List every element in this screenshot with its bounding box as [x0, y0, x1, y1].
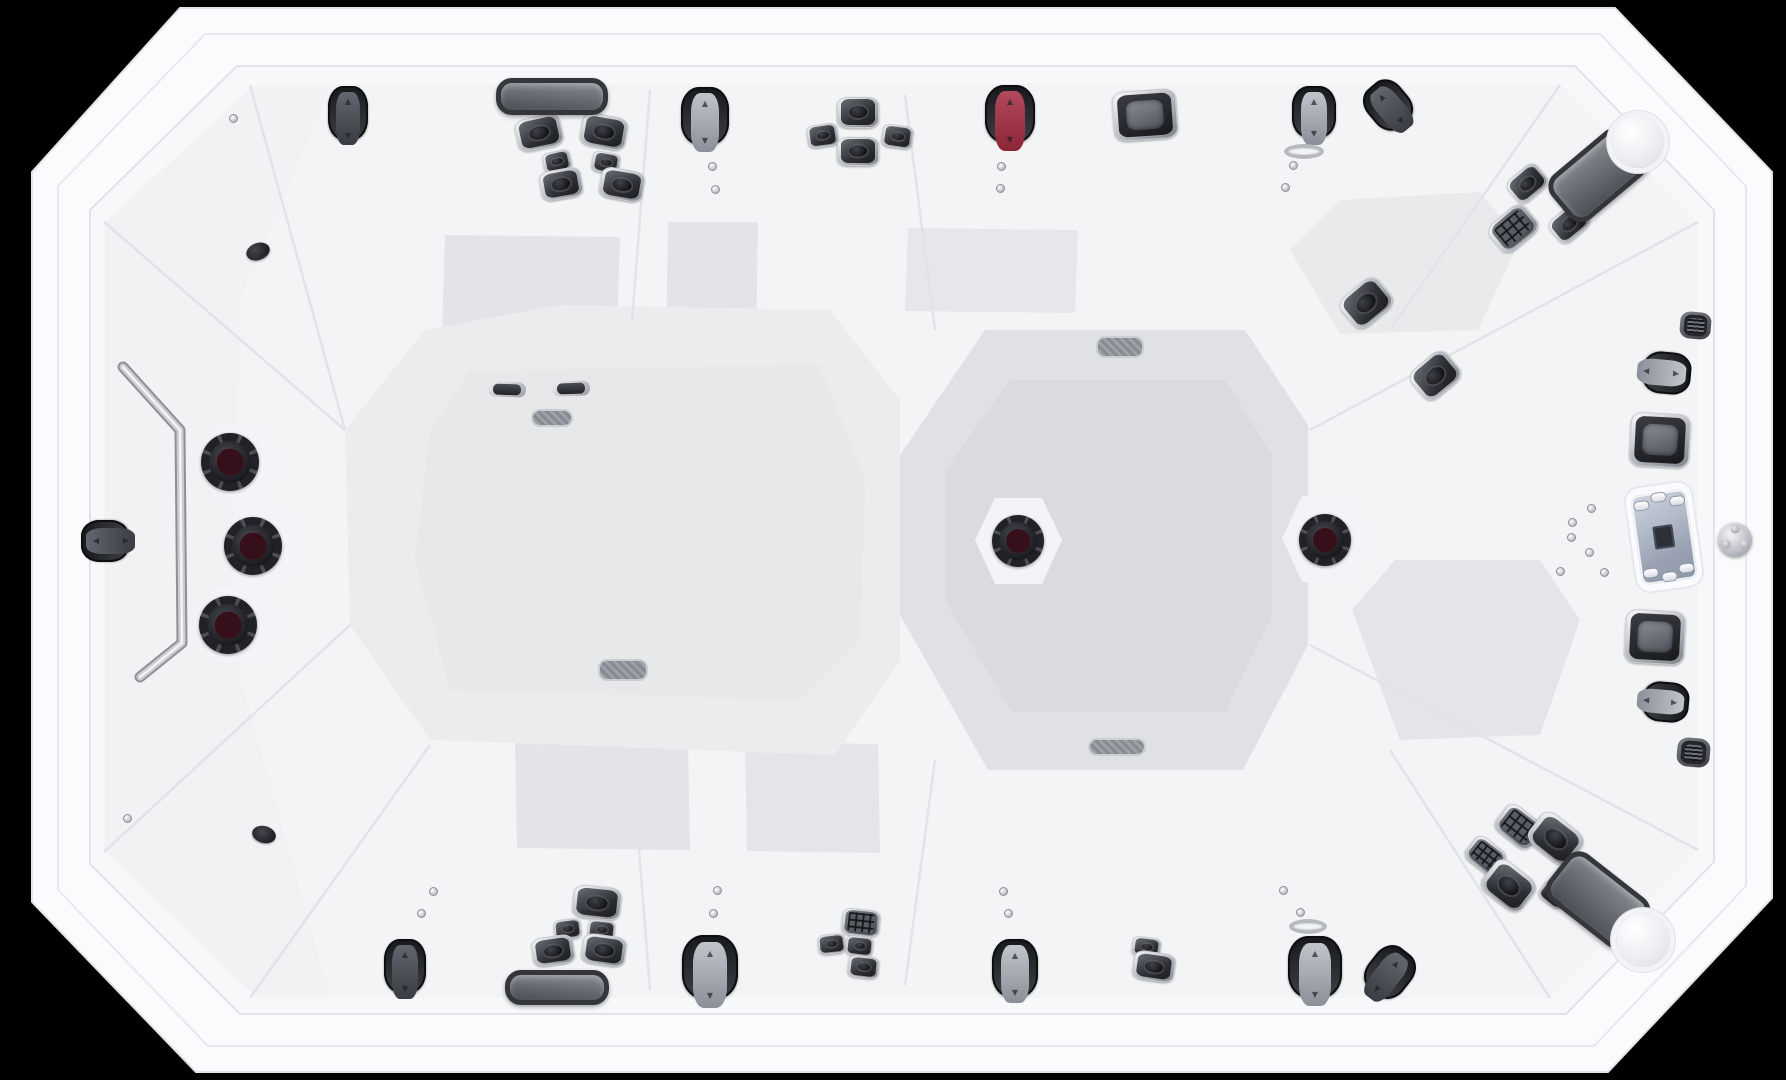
- rotary-nozzle: [217, 449, 243, 475]
- rotary-massage-jet: [1299, 514, 1351, 566]
- screw-fitting: [1281, 183, 1290, 192]
- jet-plug: [1125, 99, 1164, 131]
- air-toggle: ▲▼: [384, 939, 426, 993]
- chrome-trim-ring: [1289, 919, 1327, 934]
- air-toggle: ▲▼: [81, 520, 129, 562]
- control-panel-display: [1652, 524, 1675, 550]
- screw-fitting: [996, 184, 1005, 193]
- screw-fitting: [1279, 886, 1288, 895]
- screw-fitting: [417, 909, 426, 918]
- seat-well: [515, 742, 690, 850]
- mesh-jet: [1678, 310, 1711, 340]
- toggle-arrow-icon: ▼: [707, 992, 713, 1000]
- screw-fitting: [1587, 504, 1596, 513]
- screw-fitting: [713, 886, 722, 895]
- jet-plug: [1637, 620, 1673, 653]
- air-toggle: ▲▼: [682, 935, 738, 999]
- diverter-valve: [1718, 523, 1752, 557]
- hydro-jet: [580, 932, 628, 968]
- toggle-arrow-icon: ▼: [1311, 130, 1317, 138]
- screw-fitting: [429, 887, 438, 896]
- screw-fitting: [709, 909, 718, 918]
- toggle-arrow-icon: ▼: [1642, 697, 1651, 704]
- control-panel: [1624, 481, 1704, 593]
- rotary-nozzle: [240, 533, 266, 559]
- rotary-massage-jet: [992, 515, 1044, 567]
- hydro-jet: [805, 121, 839, 148]
- control-panel-button: [1679, 563, 1694, 573]
- toggle-arrow-icon: ▲: [707, 950, 713, 958]
- air-toggle: ▲▼: [1288, 936, 1342, 998]
- toggle-lever: ▲▼: [693, 942, 727, 1008]
- toggle-arrow-icon: ▼: [702, 137, 708, 145]
- hydro-jet: [837, 97, 879, 128]
- toggle-arrow-icon: ▲: [345, 98, 351, 106]
- control-panel-face: [1630, 489, 1699, 586]
- toggle-arrow-icon: ▲: [702, 100, 708, 108]
- screw-fitting: [708, 162, 717, 171]
- air-toggle: ▲▼: [1292, 86, 1336, 138]
- toggle-arrow-icon: ▼: [122, 538, 130, 544]
- toggle-lever: ▲▼: [1636, 688, 1685, 716]
- square-jet: [1111, 88, 1178, 142]
- air-toggle: ▲▼: [992, 939, 1038, 997]
- toggle-arrow-icon: ▲: [1391, 959, 1401, 969]
- toggle-arrow-icon: ▼: [345, 132, 351, 140]
- toggle-lever: ▲▼: [336, 92, 360, 145]
- screw-fitting: [123, 814, 132, 823]
- toggle-arrow-icon: ▲: [1670, 699, 1679, 706]
- toggle-arrow-icon: ▲: [1312, 950, 1318, 958]
- toggle-arrow-icon: ▼: [1012, 989, 1018, 997]
- slot-jet: [488, 381, 527, 397]
- slot-jet: [552, 380, 591, 396]
- air-toggle: ▲▼: [681, 87, 729, 145]
- screw-fitting: [1296, 908, 1305, 917]
- screw-fitting: [1004, 909, 1013, 918]
- drain-cover: [531, 409, 573, 427]
- control-panel-button: [1651, 492, 1666, 502]
- hydro-jet: [837, 137, 879, 166]
- jet-plug: [1642, 423, 1678, 456]
- rotary-massage-jet: [201, 433, 259, 491]
- toggle-lever: ▲▼: [1299, 943, 1331, 1006]
- hydro-jet: [817, 933, 846, 956]
- control-panel-button: [1662, 572, 1677, 582]
- toggle-arrow-icon: ▼: [1007, 136, 1013, 144]
- control-panel-button: [1643, 568, 1658, 578]
- rotary-nozzle: [1007, 530, 1030, 553]
- chrome-trim-ring: [1284, 144, 1324, 159]
- jet-nozzle: [847, 143, 869, 158]
- toggle-arrow-icon: ▲: [92, 538, 100, 544]
- toggle-arrow-icon: ▲: [1311, 98, 1317, 106]
- toggle-lever: ▲▼: [1301, 92, 1327, 145]
- air-toggle: ▲▼: [1641, 350, 1692, 396]
- waffle-grid: [847, 912, 875, 933]
- control-panel-button: [1634, 501, 1649, 511]
- screw-fitting: [711, 185, 720, 194]
- air-toggle: ▲▼: [985, 85, 1035, 143]
- toggle-arrow-icon: ▼: [1312, 991, 1318, 999]
- screw-fitting: [1556, 567, 1565, 576]
- toggle-lever: ▲▼: [1636, 358, 1687, 387]
- toggle-arrow-icon: ▲: [1012, 952, 1018, 960]
- toggle-lever: ▲▼: [691, 93, 720, 152]
- valve-lobe: [1731, 525, 1740, 534]
- swim-floor-inner: [415, 365, 865, 700]
- toggle-arrow-icon: ▲: [1377, 93, 1387, 103]
- filter-lid-knob: [1616, 913, 1670, 967]
- valve-lobe: [1722, 540, 1731, 549]
- seat-well: [745, 742, 880, 853]
- rotary-nozzle: [215, 612, 241, 638]
- screw-fitting: [1585, 548, 1594, 557]
- hydro-jet: [571, 883, 622, 921]
- toggle-lever: ▲▼: [392, 945, 417, 999]
- toggle-arrow-icon: ▼: [402, 985, 408, 993]
- air-toggle: ▲▼: [328, 86, 368, 140]
- toggle-arrow-icon: ▲: [1007, 98, 1013, 106]
- hydro-jet: [846, 954, 879, 979]
- toggle-arrow-icon: ▼: [1642, 368, 1651, 375]
- toggle-arrow-icon: ▲: [1672, 370, 1681, 377]
- filter-lid-knob: [1612, 116, 1664, 168]
- square-jet: [1629, 411, 1692, 468]
- rotary-massage-jet: [199, 596, 257, 654]
- toggle-lever: ▲▼: [1001, 945, 1029, 1003]
- headrest-pillow: [505, 970, 609, 1005]
- spa-photo-stage: ▲▼▲▼▲▼▲▼▲▼▲▼▲▼▲▼▲▼▲▼▲▼▲▼▲▼: [0, 0, 1786, 1080]
- screw-fitting: [997, 162, 1006, 171]
- jet-nozzle: [847, 104, 869, 120]
- drain-cover: [1088, 738, 1146, 756]
- drain-cover: [1096, 336, 1144, 358]
- mesh-screen: [1683, 743, 1703, 761]
- jet-face: [493, 383, 521, 395]
- air-toggle: ▲▼: [1641, 680, 1690, 724]
- toggle-arrow-icon: ▲: [402, 951, 408, 959]
- screw-fitting: [229, 114, 238, 123]
- hydro-jet: [1131, 949, 1177, 984]
- mesh-screen: [1686, 317, 1705, 334]
- toggle-lever: ▲▼: [995, 91, 1025, 150]
- square-jet: [1624, 608, 1687, 665]
- screw-fitting: [999, 887, 1008, 896]
- toggle-arrow-icon: ▼: [1371, 985, 1381, 995]
- screw-fitting: [1600, 568, 1609, 577]
- hydro-jet: [880, 122, 914, 149]
- toggle-lever: ▲▼: [86, 528, 135, 553]
- mesh-jet: [1675, 736, 1710, 768]
- screw-fitting: [1568, 518, 1577, 527]
- hydro-jet: [530, 933, 576, 968]
- screw-fitting: [1567, 533, 1576, 542]
- valve-lobe: [1739, 540, 1748, 549]
- control-panel-button: [1670, 496, 1685, 506]
- rotary-nozzle: [1314, 529, 1337, 552]
- jet-face: [557, 382, 585, 394]
- screw-fitting: [1289, 161, 1298, 170]
- waffle-jet: [841, 907, 882, 938]
- hydro-jet: [845, 935, 874, 958]
- rotary-massage-jet: [224, 517, 282, 575]
- headrest-pillow: [496, 78, 608, 115]
- drain-cover: [598, 659, 648, 681]
- toggle-arrow-icon: ▼: [1397, 116, 1407, 126]
